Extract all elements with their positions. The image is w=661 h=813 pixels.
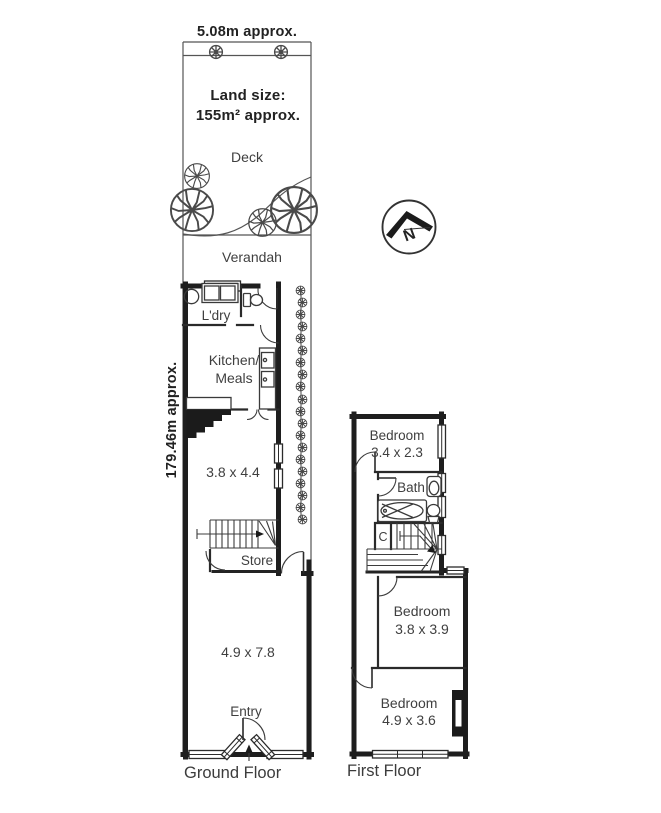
bedroom3-name: Bedroom xyxy=(381,695,438,711)
shrub-icon xyxy=(275,46,288,59)
toilet-icon xyxy=(427,477,441,497)
living-dims-label: 3.8 x 4.4 xyxy=(206,464,260,480)
shrub-icon xyxy=(210,46,223,59)
bedroom1-dims: 3.4 x 2.3 xyxy=(371,445,423,460)
bedroom2-name: Bedroom xyxy=(394,603,451,619)
floorplan-drawing: N 5.08m approx. Land size: 155m² approx.… xyxy=(0,0,661,813)
chimney-breast xyxy=(187,398,232,410)
stair-arrow xyxy=(256,531,264,538)
bath-label: Bath xyxy=(397,480,425,495)
store-label: Store xyxy=(241,553,273,568)
tree-icon xyxy=(271,187,317,233)
ff-doors xyxy=(352,452,397,688)
first-floor-title: First Floor xyxy=(347,762,422,780)
ground-floor-title: Ground Floor xyxy=(184,764,282,782)
cupboard-label: C xyxy=(378,530,387,544)
fireplace-solid xyxy=(187,410,232,439)
deck-label: Deck xyxy=(231,149,264,165)
tree-icon xyxy=(171,189,213,231)
gf-fixtures xyxy=(184,284,275,410)
passage-plant-row xyxy=(296,286,307,524)
frontage-dimension: 5.08m approx. xyxy=(197,24,297,40)
ff-fireplace xyxy=(452,690,467,737)
bedroom2-dims: 3.8 x 3.9 xyxy=(395,621,449,637)
bedroom1-name: Bedroom xyxy=(370,428,425,443)
depth-dimension: 179.46m approx. xyxy=(164,362,180,479)
basin-icon xyxy=(427,505,440,523)
land-size-value: 155m² approx. xyxy=(196,107,300,124)
tree-icon xyxy=(249,209,277,237)
laundry-label: L'dry xyxy=(202,308,231,323)
tree-icon xyxy=(185,164,210,189)
kitchen-bench xyxy=(260,348,276,409)
floorplan-page: N 5.08m approx. Land size: 155m² approx.… xyxy=(0,0,661,813)
lounge-dims-label: 4.9 x 7.8 xyxy=(221,644,275,660)
north-compass: N xyxy=(383,201,436,254)
gf-stairs xyxy=(197,520,279,548)
entry-label: Entry xyxy=(230,704,262,719)
kitchen-label-line2: Meals xyxy=(215,370,252,386)
garden-vegetation xyxy=(171,46,317,237)
toilet-icon xyxy=(244,294,263,307)
entry-arrow xyxy=(245,745,253,754)
land-size-label: Land size: xyxy=(210,87,285,104)
bathtub-icon xyxy=(378,500,427,522)
verandah-label: Verandah xyxy=(222,249,282,265)
bedroom3-dims: 4.9 x 3.6 xyxy=(382,712,436,728)
kitchen-label-line1: Kitchen/ xyxy=(209,352,260,368)
